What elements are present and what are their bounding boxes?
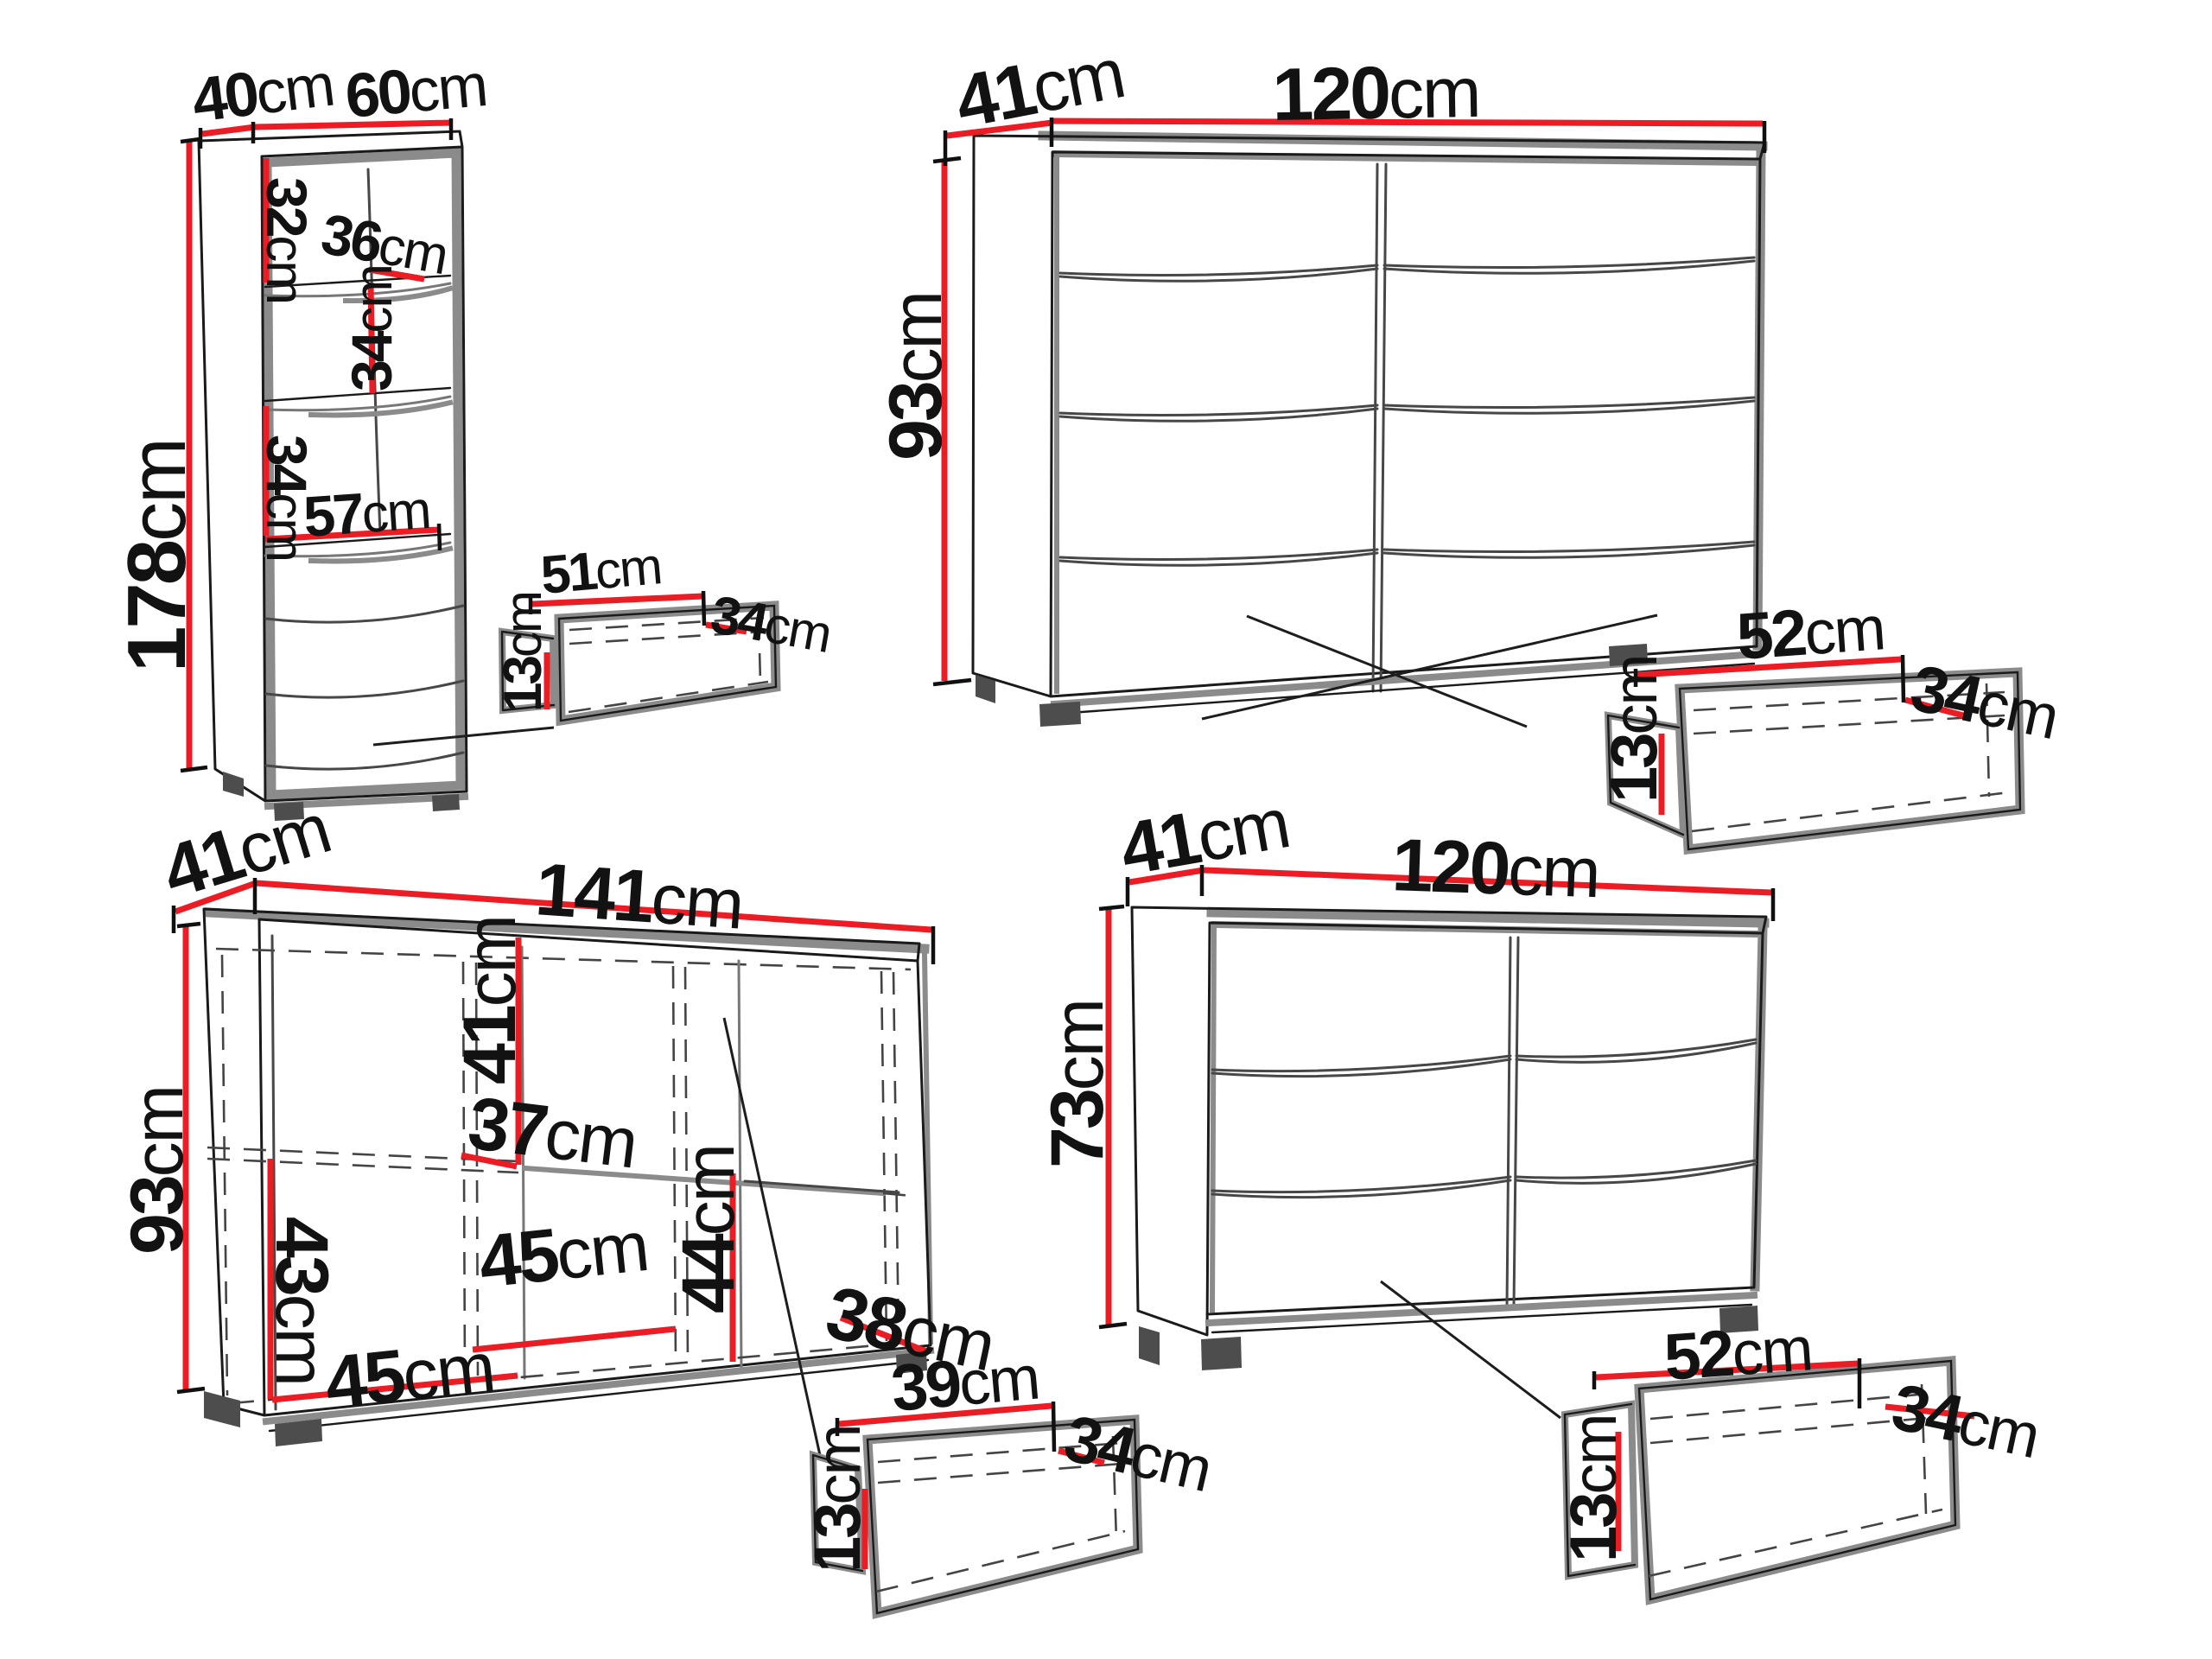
svg-text:39cm: 39cm [888,1339,1041,1426]
svg-text:93cm: 93cm [116,1086,199,1255]
svg-text:178cm: 178cm [111,439,203,672]
svg-text:60cm: 60cm [342,50,489,131]
svg-text:52cm: 52cm [1662,1311,1814,1395]
svg-text:120cm: 120cm [1390,823,1600,913]
svg-text:120cm: 120cm [1272,50,1480,137]
svg-text:13cm: 13cm [1557,1414,1630,1562]
svg-text:32cm: 32cm [255,177,319,303]
svg-text:13cm: 13cm [801,1425,874,1573]
svg-text:44cm: 44cm [667,1145,750,1313]
svg-text:57cm: 57cm [302,476,432,549]
svg-text:51cm: 51cm [538,536,663,606]
svg-text:34cm: 34cm [340,265,404,391]
svg-text:41cm: 41cm [448,916,531,1084]
svg-text:52cm: 52cm [1734,590,1886,674]
svg-text:93cm: 93cm [874,292,957,461]
svg-text:73cm: 73cm [1036,1000,1119,1168]
svg-text:13cm: 13cm [1598,655,1671,803]
svg-text:13cm: 13cm [493,592,553,712]
